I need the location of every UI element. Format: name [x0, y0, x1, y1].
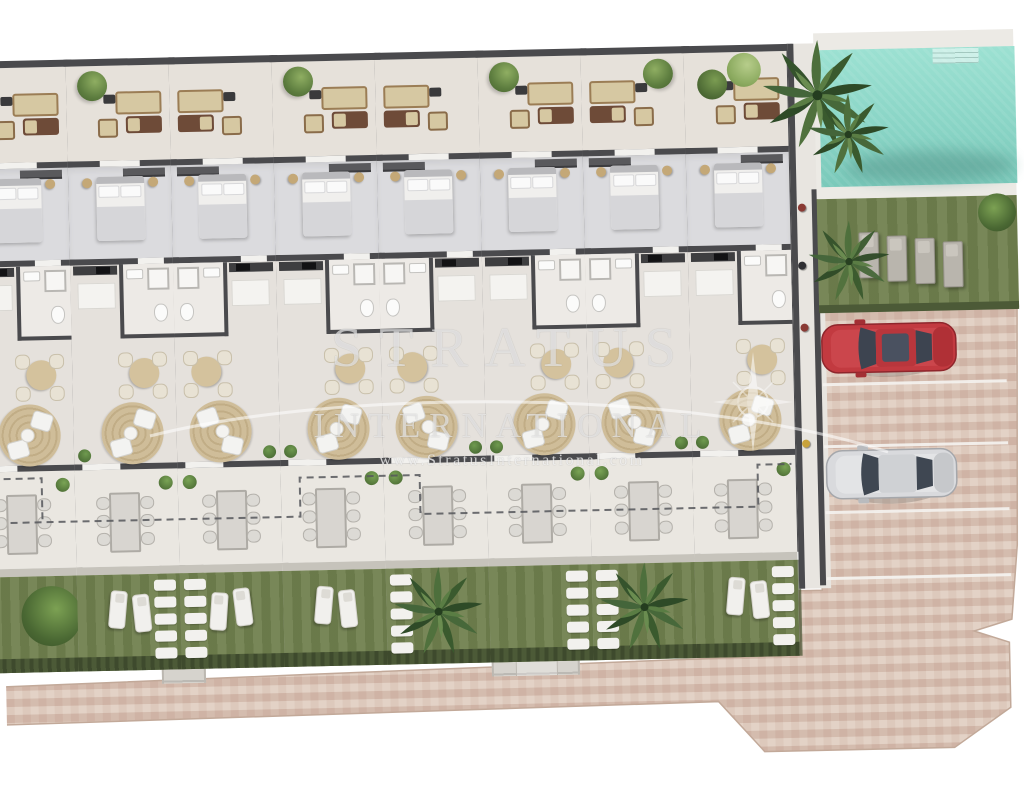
dining-chair — [183, 351, 198, 366]
stepping-stones — [154, 579, 178, 664]
round-area-rug — [395, 395, 458, 458]
outdoor-chair — [714, 501, 728, 514]
bathroom — [16, 266, 72, 341]
bathroom — [325, 259, 381, 334]
outdoor-chair — [346, 491, 360, 504]
dining-chair — [50, 386, 65, 401]
kitchen-island — [231, 279, 270, 306]
cooktop — [442, 259, 456, 266]
sun-lounger — [915, 238, 936, 284]
cooktop — [236, 264, 250, 271]
dining-chair — [184, 383, 199, 398]
outdoor-dining-table — [6, 494, 38, 555]
terrace-plant — [159, 475, 173, 489]
outdoor-chair — [203, 530, 217, 543]
outdoor-chair — [452, 507, 466, 520]
roof-coffee-table — [309, 90, 321, 99]
kitchen-island — [283, 278, 322, 305]
dining-chair — [530, 343, 545, 358]
coffee-table — [535, 417, 549, 431]
apartment-unit — [65, 57, 181, 671]
nightstand — [250, 174, 260, 184]
nightstand — [184, 176, 194, 186]
double-bed — [302, 171, 351, 236]
cooktop — [714, 253, 728, 260]
dining-chair — [359, 379, 374, 394]
outdoor-chair — [408, 508, 422, 521]
garden-sunlounger — [132, 593, 153, 633]
dining-chair — [324, 348, 339, 363]
shower — [44, 270, 66, 292]
sink — [203, 267, 220, 277]
coffee-table — [329, 422, 343, 436]
lounge-chair — [132, 407, 157, 430]
bathroom — [173, 262, 229, 337]
garden-bush — [21, 585, 82, 646]
dining-chair — [325, 380, 340, 395]
outdoor-chair — [715, 519, 729, 532]
round-area-rug — [101, 402, 164, 465]
dining-chair — [736, 371, 751, 386]
dining-chair — [152, 352, 167, 367]
sink — [409, 263, 426, 273]
coffee-table — [123, 426, 137, 440]
terrace-plant — [594, 466, 608, 480]
kitchen-counter — [691, 252, 735, 262]
outdoor-dining-table — [628, 481, 660, 542]
cooktop — [648, 255, 662, 262]
bathroom — [737, 250, 793, 325]
outdoor-dining-table — [727, 479, 759, 540]
dining-chair — [629, 373, 644, 388]
roof-coffee-table — [515, 86, 527, 95]
toilet — [386, 298, 400, 316]
outdoor-chair — [303, 528, 317, 541]
sun-lounger — [943, 241, 964, 287]
roof-sofa — [383, 85, 429, 109]
apartment-unit — [168, 55, 284, 669]
dining-chair — [389, 346, 404, 361]
outdoor-chair — [759, 518, 773, 531]
dining-chair — [736, 339, 751, 354]
outdoor-chair — [758, 500, 772, 513]
roof-coffee-table — [0, 97, 12, 106]
bathroom — [379, 258, 435, 333]
round-area-rug — [0, 404, 61, 467]
dining-chair — [595, 342, 610, 357]
dining-chair — [119, 384, 134, 399]
outdoor-chair — [96, 515, 110, 528]
outdoor-dining-table — [216, 490, 248, 551]
garden-sunlounger — [726, 577, 746, 616]
outdoor-chair — [202, 494, 216, 507]
terrace-plant — [56, 478, 70, 492]
garden-sunlounger — [337, 589, 358, 629]
dining-chair — [629, 341, 644, 356]
apartment-unit — [271, 53, 387, 667]
lounge-chair — [29, 410, 54, 433]
roof-coffee-table — [223, 92, 235, 101]
apartment-unit — [374, 51, 490, 665]
bathroom — [585, 253, 641, 328]
dining-chair — [49, 354, 64, 369]
nightstand — [45, 179, 55, 189]
toilet — [180, 303, 194, 321]
roof-sofa — [115, 91, 161, 115]
dining-chair — [770, 338, 785, 353]
outdoor-chair — [553, 523, 567, 536]
nightstand — [596, 167, 606, 177]
outdoor-chair — [246, 512, 260, 525]
garden-sunlounger — [108, 590, 128, 629]
outdoor-chair — [658, 485, 672, 498]
roof-coffee-table — [635, 83, 647, 92]
outdoor-chair — [552, 487, 566, 500]
outdoor-chair — [247, 530, 261, 543]
outdoor-chair — [614, 485, 628, 498]
dining-chair — [390, 378, 405, 393]
kitchen-island — [643, 270, 682, 297]
shower — [177, 267, 199, 289]
outdoor-dining-table — [422, 485, 454, 546]
double-bed — [714, 162, 763, 227]
potted-plant — [675, 436, 688, 449]
dining-chair — [595, 374, 610, 389]
building-units — [0, 44, 806, 674]
nightstand — [700, 165, 710, 175]
nightstand — [560, 168, 570, 178]
outdoor-chair — [452, 489, 466, 502]
dining-chair — [358, 347, 373, 362]
kitchen-counter — [435, 258, 479, 268]
garden-sunlounger — [749, 580, 770, 620]
roof-sofa-brown — [538, 107, 574, 125]
outdoor-chair — [140, 496, 154, 509]
double-bed — [198, 174, 247, 239]
roof-armchair — [716, 105, 736, 124]
roof-sofa-brown — [126, 116, 162, 134]
outdoor-chair — [509, 524, 523, 537]
potted-plant — [284, 445, 297, 458]
terrace-plant — [776, 462, 790, 476]
lawn-tree-icon — [802, 214, 896, 310]
nightstand — [494, 169, 504, 179]
kitchen-counter — [279, 261, 323, 271]
shower — [353, 263, 375, 285]
roof-sofa-brown — [332, 111, 368, 129]
cooktop — [96, 267, 110, 274]
roof-armchair — [222, 116, 242, 135]
dining-chair — [217, 350, 232, 365]
dining-chair — [564, 375, 579, 390]
roof-sofa-brown — [590, 105, 626, 123]
dining-chair — [770, 370, 785, 385]
kitchen-counter — [73, 266, 117, 276]
bathroom — [531, 254, 587, 329]
shower — [383, 262, 405, 284]
kitchen-island — [437, 275, 476, 302]
palm-tree-icon — [801, 88, 895, 182]
double-bed — [96, 176, 145, 241]
dining-chair — [218, 382, 233, 397]
outdoor-chair — [37, 498, 51, 511]
roof-armchair — [634, 107, 654, 126]
outdoor-chair — [658, 503, 672, 516]
bathroom — [119, 263, 175, 338]
dining-chair — [16, 386, 31, 401]
apartment-unit — [477, 48, 593, 662]
terrace-plant — [365, 471, 379, 485]
potted-plant — [490, 440, 503, 453]
palm-tree-icon — [388, 561, 490, 663]
nightstand — [662, 165, 672, 175]
roof-armchair — [428, 111, 448, 130]
outdoor-chair — [246, 494, 260, 507]
outdoor-chair — [140, 514, 154, 527]
round-area-rug — [513, 393, 576, 456]
cooktop — [302, 262, 316, 269]
potted-plant — [263, 445, 276, 458]
outdoor-chair — [346, 509, 360, 522]
round-area-rug — [719, 388, 782, 451]
roof-sofa — [12, 93, 58, 117]
sink — [538, 260, 555, 270]
outdoor-chair — [453, 525, 467, 538]
outdoor-chair — [96, 497, 110, 510]
outdoor-dining-table — [109, 492, 141, 553]
pool-steps — [932, 48, 978, 64]
nightstand — [148, 177, 158, 187]
kitchen-counter — [641, 253, 685, 263]
roof-shrub — [643, 58, 674, 89]
nightstand — [766, 163, 776, 173]
apartment-unit — [580, 46, 696, 660]
roof-tree-dark — [697, 69, 728, 100]
outdoor-chair — [37, 516, 51, 529]
kitchen-island — [695, 269, 734, 296]
outdoor-chair — [408, 490, 422, 503]
nightstand — [354, 172, 364, 182]
shower — [589, 258, 611, 280]
round-area-rug — [307, 397, 370, 460]
roof-sofa-brown — [23, 118, 59, 136]
toilet — [51, 306, 65, 324]
outdoor-dining-table — [315, 488, 347, 549]
outdoor-chair — [552, 505, 566, 518]
terrace-plant — [570, 466, 584, 480]
outdoor-chair — [614, 503, 628, 516]
coffee-table — [741, 413, 755, 427]
outdoor-chair — [302, 492, 316, 505]
outdoor-chair — [302, 510, 316, 523]
shower — [147, 267, 169, 289]
kitchen-island — [77, 283, 116, 310]
outdoor-chair — [714, 483, 728, 496]
roof-sofa — [177, 89, 223, 113]
cooktop — [0, 269, 7, 276]
dining-chair — [153, 384, 168, 399]
red-car — [818, 315, 959, 380]
garden-sunlounger — [209, 592, 228, 631]
outdoor-chair — [615, 521, 629, 534]
dining-chair — [15, 355, 30, 370]
outdoor-chair — [347, 527, 361, 540]
shower — [559, 258, 581, 280]
double-bed — [404, 169, 453, 234]
garden-sunlounger — [232, 587, 254, 627]
round-area-rug — [189, 400, 252, 463]
roof-sofa — [321, 86, 367, 110]
outdoor-chair — [659, 521, 673, 534]
nightstand — [390, 171, 400, 181]
toilet — [154, 303, 168, 321]
toilet — [592, 294, 606, 312]
lounge-chair — [544, 398, 569, 421]
nightstand — [288, 174, 298, 184]
double-bed — [610, 165, 659, 230]
roof-sofa-brown — [384, 110, 420, 128]
dining-chair — [530, 375, 545, 390]
shower — [765, 254, 787, 276]
lounge-chair — [750, 394, 775, 417]
roof-sofa — [589, 80, 635, 104]
coffee-table — [21, 428, 35, 442]
toilet — [360, 299, 374, 317]
outdoor-dining-table — [521, 483, 553, 544]
dining-chair — [564, 343, 579, 358]
sink — [332, 265, 349, 275]
potted-plant — [78, 449, 91, 462]
nightstand — [82, 178, 92, 188]
outdoor-chair — [508, 488, 522, 501]
kitchen-island — [0, 285, 13, 312]
toilet — [772, 290, 786, 308]
terrace-plant — [389, 470, 403, 484]
lounge-chair — [338, 403, 363, 426]
white-car — [823, 440, 960, 507]
stepping-stones — [772, 566, 796, 651]
outdoor-chair — [758, 482, 772, 495]
dining-chair — [423, 378, 438, 393]
dining-chair — [118, 352, 133, 367]
stepping-stones — [566, 570, 590, 655]
toilet — [566, 294, 580, 312]
sink — [126, 269, 143, 279]
outdoor-chair — [508, 506, 522, 519]
site-plan-rendering: STRATUS INTERNATIONAL www.StratusInterna… — [0, 0, 1024, 800]
kitchen-island — [489, 274, 528, 301]
garden-sunlounger — [314, 586, 334, 625]
roof-sofa — [527, 82, 573, 106]
kitchen-counter — [485, 257, 529, 267]
roof-armchair — [0, 121, 15, 140]
potted-plant — [696, 436, 709, 449]
potted-plant — [469, 441, 482, 454]
roof-armchair — [98, 119, 118, 138]
rotated-site — [0, 0, 1024, 800]
outdoor-chair — [409, 526, 423, 539]
palm-tree-icon — [593, 556, 695, 658]
sink — [615, 258, 632, 268]
terrace-plant — [183, 475, 197, 489]
roof-armchair — [304, 114, 324, 133]
roof-coffee-table — [429, 87, 441, 96]
double-bed — [508, 167, 557, 232]
dining-chair — [423, 346, 438, 361]
outdoor-chair — [141, 532, 155, 545]
kitchen-counter — [229, 262, 273, 272]
roof-coffee-table — [103, 95, 115, 104]
cooktop — [508, 258, 522, 265]
round-area-rug — [601, 391, 664, 454]
double-bed — [0, 178, 42, 243]
kitchen-counter — [0, 268, 14, 278]
sink — [744, 256, 761, 266]
nightstand — [456, 170, 466, 180]
outdoor-chair — [38, 534, 52, 547]
roof-sofa-brown — [178, 114, 214, 132]
outdoor-chair — [97, 533, 111, 546]
sink — [23, 271, 40, 281]
stepping-stones — [184, 579, 208, 664]
outdoor-chair — [202, 512, 216, 525]
roof-armchair — [510, 110, 530, 129]
